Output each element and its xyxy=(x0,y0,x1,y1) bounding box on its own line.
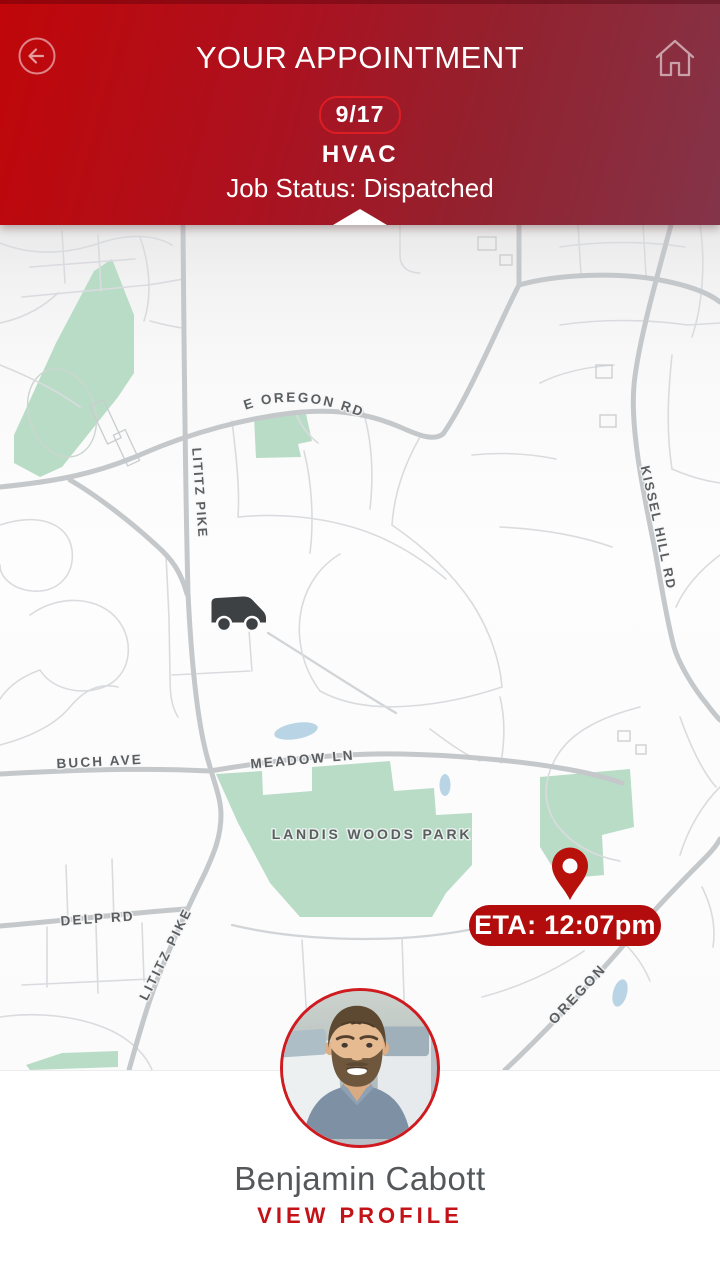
label-lititz-pike-bottom: LITITZ PIKE xyxy=(136,905,195,1003)
header: YOUR APPOINTMENT 9/17 HVAC Job Status: D… xyxy=(0,0,720,225)
building-outlines xyxy=(90,237,646,754)
home-button[interactable] xyxy=(652,34,698,80)
job-status: Job Status: Dispatched xyxy=(0,173,720,204)
header-top-edge xyxy=(0,0,720,4)
label-landis-woods-park: LANDIS WOODS PARK xyxy=(272,826,473,842)
label-delp-rd: DELP RD xyxy=(60,908,135,928)
technician-avatar[interactable] xyxy=(280,988,440,1148)
destination-pin-icon xyxy=(552,848,588,901)
view-profile-link[interactable]: VIEW PROFILE xyxy=(0,1203,720,1229)
date-badge: 9/17 xyxy=(319,96,402,134)
label-lititz-pike-top: LITITZ PIKE xyxy=(189,447,210,538)
appointment-screen: E OREGON RD LITITZ PIKE KISSEL HILL RD B… xyxy=(0,0,720,1280)
technician-name: Benjamin Cabott xyxy=(0,1160,720,1198)
label-oregon: OREGON xyxy=(545,960,609,1027)
page-title: YOUR APPOINTMENT xyxy=(0,40,720,76)
service-type: HVAC xyxy=(0,141,720,169)
home-icon xyxy=(652,34,698,80)
technician-photo xyxy=(283,991,431,1139)
truck-icon xyxy=(212,596,267,631)
date-badge-row: 9/17 xyxy=(0,96,720,134)
park-areas xyxy=(14,259,634,1070)
eta-badge: ETA: 12:07pm xyxy=(469,905,661,946)
map-view[interactable]: E OREGON RD LITITZ PIKE KISSEL HILL RD B… xyxy=(0,225,720,1071)
header-notch xyxy=(333,209,387,225)
